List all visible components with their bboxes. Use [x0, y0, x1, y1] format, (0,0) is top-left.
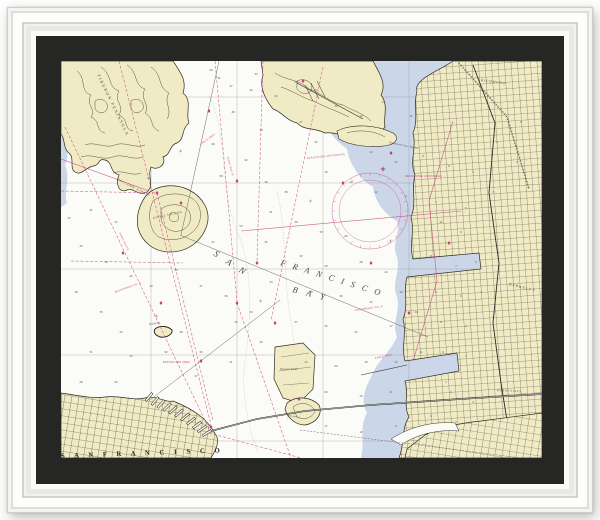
depth-sounding: 22	[314, 140, 318, 144]
depth-sounding: 41	[89, 208, 93, 212]
depth-sounding: 31	[229, 360, 233, 364]
depth-sounding: 48	[231, 110, 235, 114]
depth-sounding: 29	[274, 94, 278, 98]
depth-sounding: 28	[359, 260, 363, 264]
depth-sounding: 12	[374, 190, 378, 194]
depth-sounding: 32	[164, 350, 168, 354]
depth-sounding: 18	[349, 180, 353, 184]
depth-sounding: 32	[299, 254, 303, 258]
depth-sounding: 24	[384, 270, 388, 274]
picture-frame: 5144483946425836334137443942383582433733…	[7, 7, 593, 513]
depth-sounding: 27	[194, 374, 198, 378]
depth-sounding: 21	[354, 330, 358, 334]
depth-sounding: 51	[217, 76, 221, 80]
depth-sounding: 28	[79, 380, 83, 384]
depth-sounding: 58	[219, 174, 223, 178]
depth-sounding: 18	[364, 360, 368, 364]
framed-chart-photo: 5144483946425836334137443942383582433733…	[0, 0, 600, 520]
depth-sounding: 37	[229, 84, 233, 88]
depth-sounding: 40	[149, 284, 153, 288]
depth-sounding: 30	[199, 350, 203, 354]
depth-sounding: 30	[344, 234, 348, 238]
depth-sounding: 33	[269, 280, 273, 284]
map-label: DESIGNATED ANCHORAGE	[405, 175, 442, 178]
depth-sounding: 37	[199, 284, 203, 288]
depth-sounding: 33	[119, 330, 123, 334]
depth-sounding: 20	[334, 104, 338, 108]
depth-sounding: 31	[89, 350, 93, 354]
depth-sounding: 40	[209, 68, 213, 72]
depth-sounding: 34	[249, 310, 253, 314]
depth-sounding: 14	[369, 150, 373, 154]
depth-sounding: 27	[299, 120, 303, 124]
depth-sounding: 36	[294, 220, 298, 224]
depth-sounding: 45	[264, 240, 268, 244]
picture-mat: 5144483946425836334137443942383582433733…	[36, 36, 564, 484]
depth-sounding: 41	[269, 210, 273, 214]
depth-sounding: 15	[359, 394, 363, 398]
depth-sounding: 11	[409, 114, 413, 118]
depth-sounding: 43	[174, 268, 178, 272]
depth-sounding: 46	[211, 142, 215, 146]
depth-sounding: 33	[67, 216, 71, 220]
depth-sounding: 24	[304, 360, 308, 364]
depth-sounding: 44	[79, 244, 83, 248]
depth-sounding: 35	[234, 320, 238, 324]
depth-sounding: 11	[389, 390, 393, 394]
depth-sounding: 39	[104, 260, 108, 264]
depth-sounding: 14	[414, 310, 418, 314]
map-label: RESTRICTED AREA	[163, 361, 190, 364]
depth-sounding: 52	[239, 224, 243, 228]
depth-sounding: 17	[324, 424, 328, 428]
depth-sounding: 36	[264, 180, 268, 184]
depth-sounding: 42	[244, 158, 248, 162]
depth-sounding: 38	[179, 330, 183, 334]
depth-sounding: 24	[314, 88, 318, 92]
depth-sounding: 29	[114, 380, 118, 384]
depth-sounding: 33	[254, 72, 258, 76]
depth-sounding: 11	[419, 350, 423, 354]
chart-canvas: 5144483946425836334137443942383582433733…	[61, 61, 542, 458]
depth-sounding: 10	[394, 160, 398, 164]
depth-sounding: 44	[249, 88, 253, 92]
depth-sounding: 13	[394, 360, 398, 364]
depth-sounding: 17	[389, 324, 393, 328]
depth-sounding: 37	[114, 220, 118, 224]
nautical-chart: 5144483946425836334137443942383582433733…	[61, 61, 542, 458]
depth-sounding: 39	[259, 128, 263, 132]
depth-sounding: 27	[294, 320, 298, 324]
depth-sounding: 36	[154, 314, 158, 318]
depth-sounding: 42	[129, 274, 133, 278]
depth-sounding: 30	[259, 340, 263, 344]
depth-sounding: 11	[429, 254, 433, 258]
depth-sounding: 38	[74, 290, 78, 294]
depth-sounding: 12	[359, 430, 363, 434]
depth-sounding: 22	[369, 300, 373, 304]
land-alcatraz	[154, 326, 172, 337]
depth-sounding: 26	[339, 294, 343, 298]
depth-sounding: 12	[439, 220, 443, 224]
depth-sounding: 34	[129, 354, 133, 358]
depth-sounding: 82	[147, 176, 151, 180]
depth-sounding: 29	[324, 264, 328, 268]
depth-sounding: 38	[284, 190, 288, 194]
depth-sounding: 13	[381, 100, 385, 104]
map-label: Treasure Island	[280, 368, 298, 371]
depth-sounding: 19	[399, 290, 403, 294]
depth-sounding: 19	[324, 170, 328, 174]
depth-sounding: 33	[319, 230, 323, 234]
depth-sounding: 25	[324, 324, 328, 328]
depth-sounding: 47	[211, 240, 215, 244]
depth-sounding: 26	[294, 80, 298, 84]
depth-sounding: 16	[359, 114, 363, 118]
depth-sounding: 35	[99, 310, 103, 314]
depth-sounding: 39	[224, 294, 228, 298]
depth-sounding: 22	[334, 364, 338, 368]
depth-sounding: 20	[324, 390, 328, 394]
